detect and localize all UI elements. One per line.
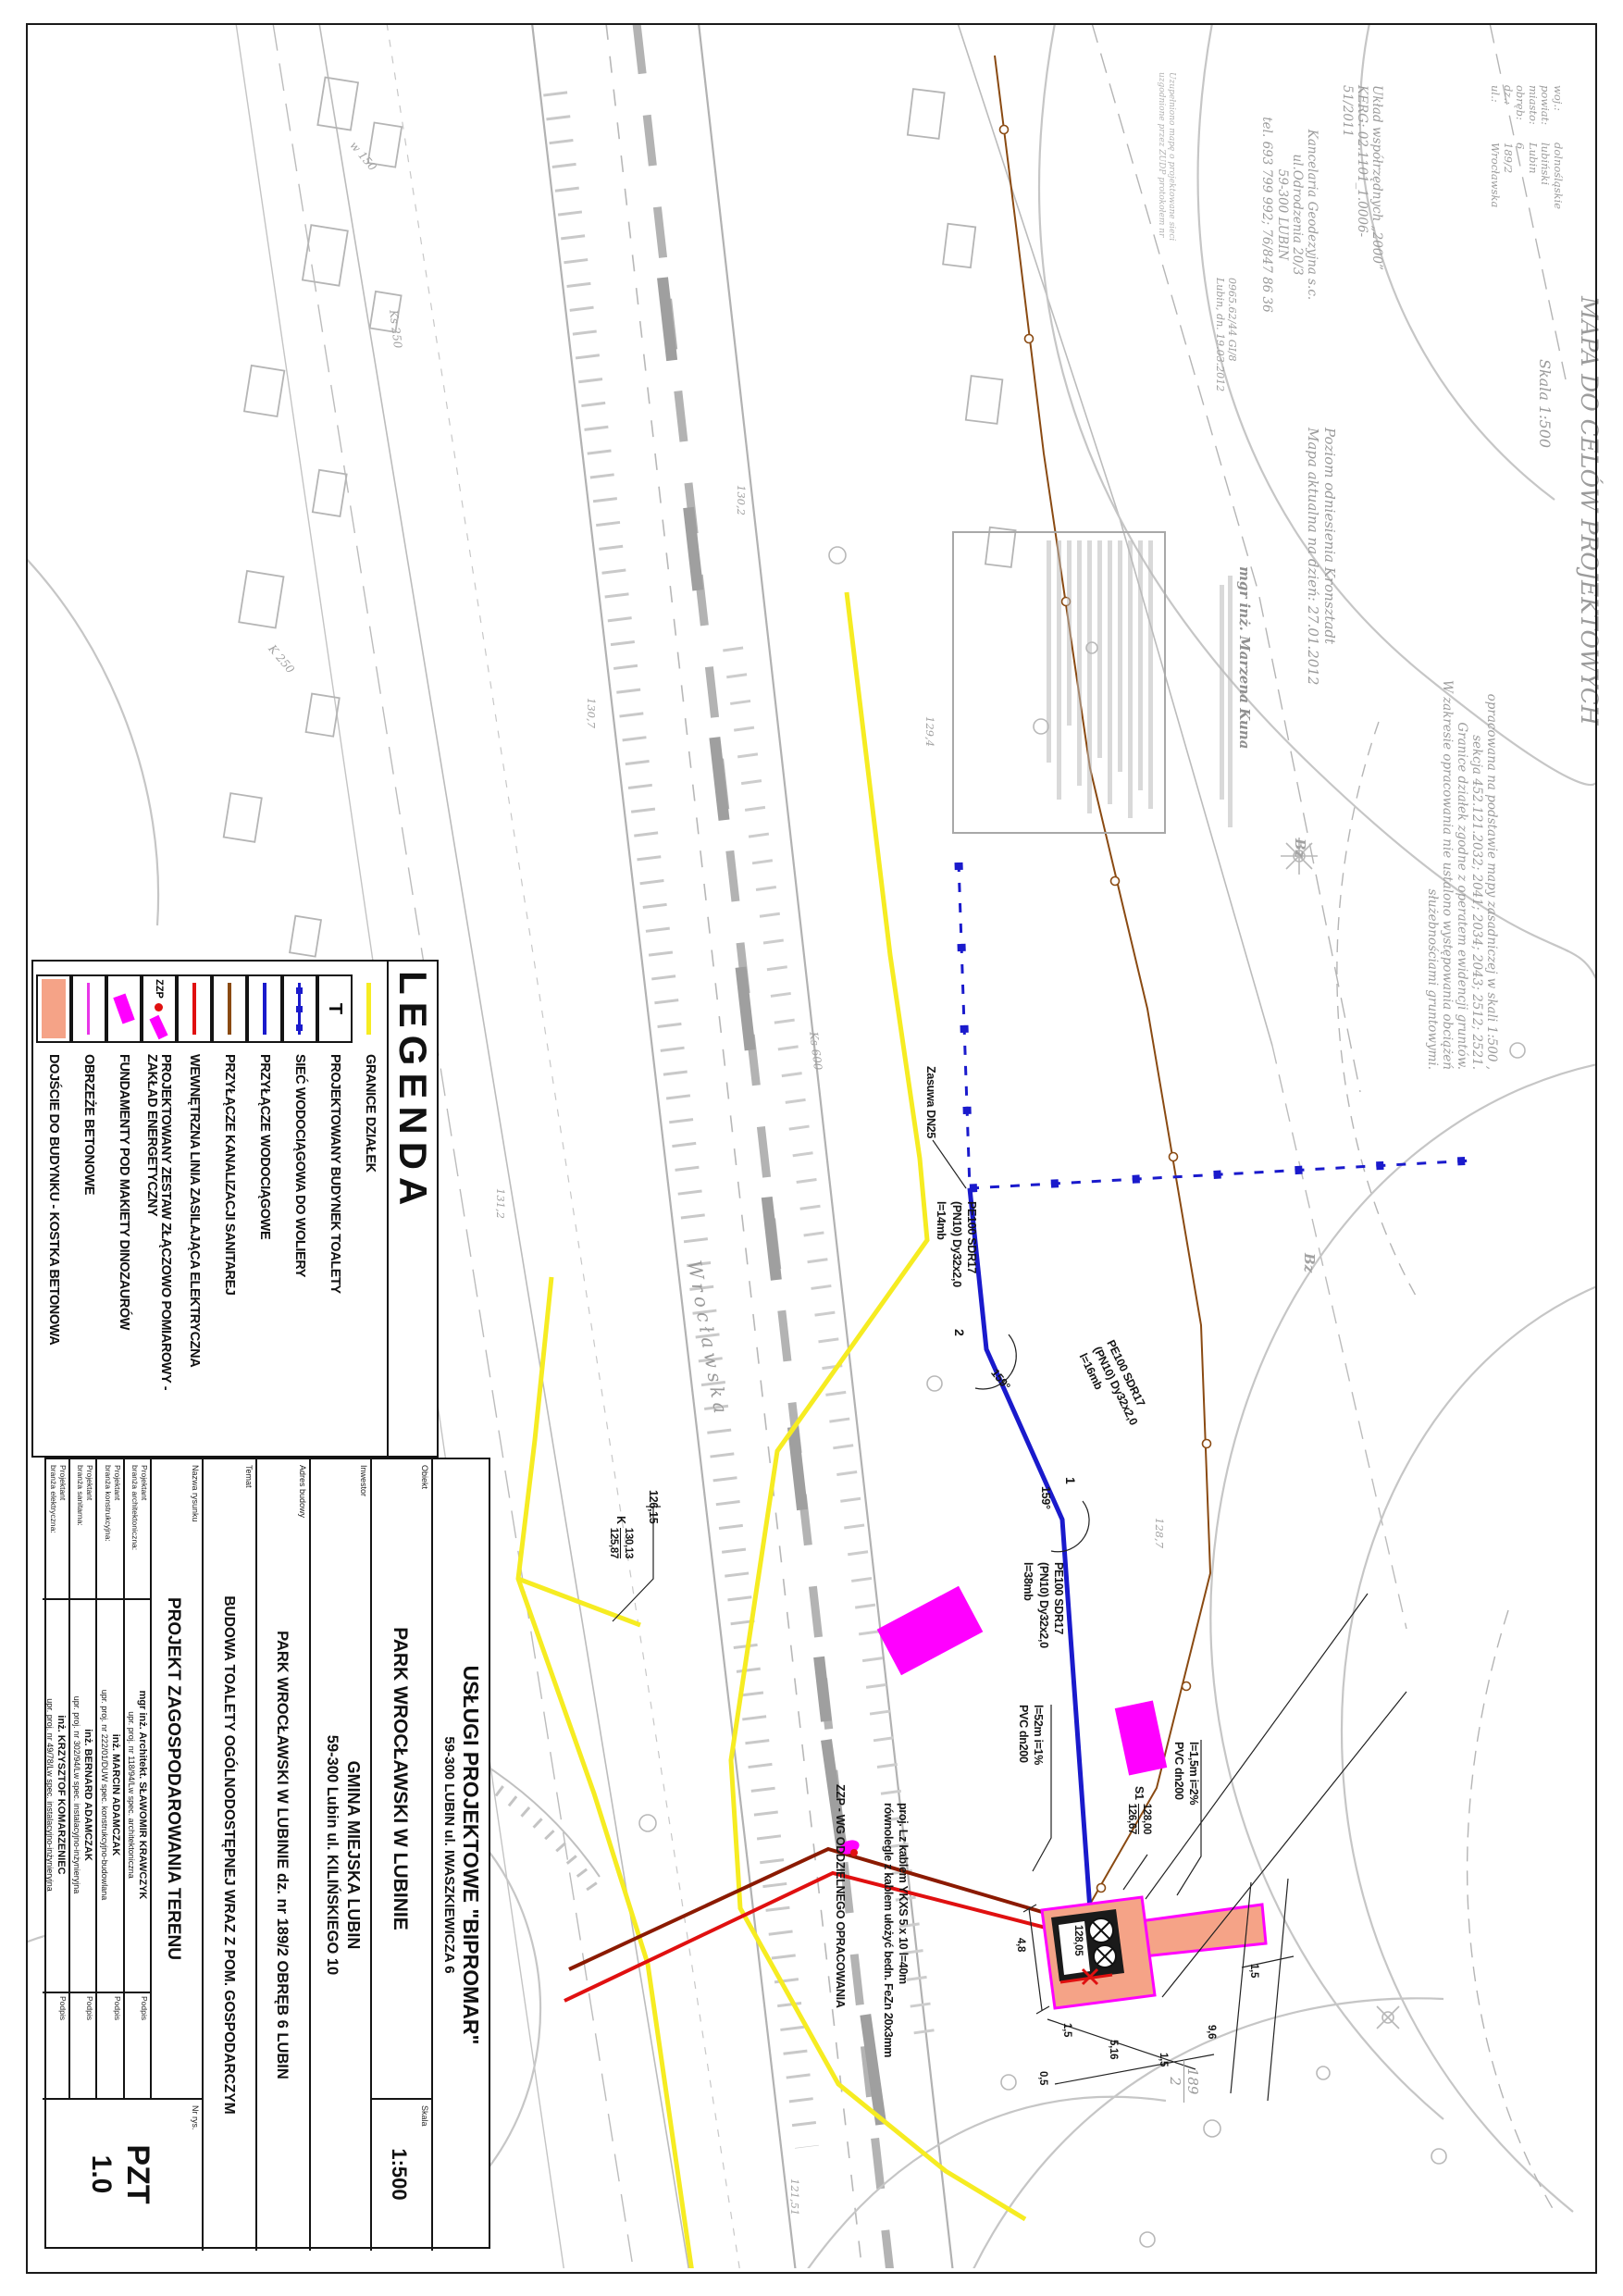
- sheet-border: [26, 23, 1597, 2274]
- site-plan-sheet: Zasuwa DN25 PE100 SDR17 (PN10) Dy32x2,0 …: [0, 0, 1623, 2296]
